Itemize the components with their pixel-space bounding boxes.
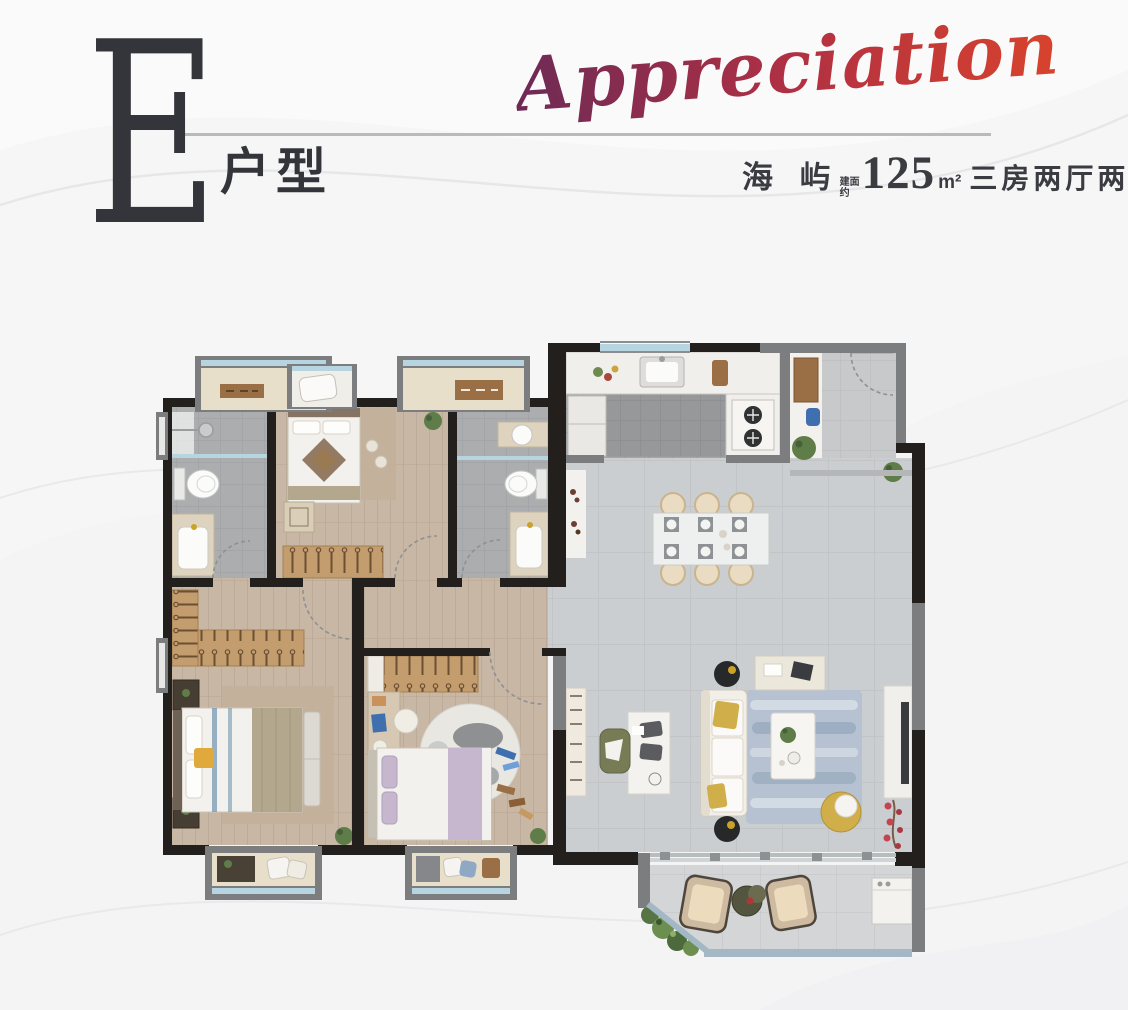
- desk: [628, 712, 670, 794]
- armchair: [600, 729, 630, 773]
- sofa: [701, 690, 747, 816]
- sliding-door: [650, 852, 896, 862]
- bay-window: [205, 846, 322, 900]
- tv-console: [884, 686, 912, 798]
- plant-icon: [335, 827, 353, 845]
- console-table: [755, 656, 825, 690]
- floor-plan-page: E 户型 Appreciation 海 屿 建面 约 125 m² 三房两厅两卫: [0, 0, 1128, 1010]
- lounge-chair: [765, 875, 817, 932]
- lounge-chair: [679, 874, 733, 933]
- balcony-railing: [704, 949, 912, 957]
- basin-icon: [512, 425, 532, 445]
- entry-mat: [566, 470, 586, 558]
- kitchen-sink-icon: [640, 356, 684, 387]
- washing-area: [872, 878, 912, 924]
- fridge-icon: [568, 396, 606, 456]
- vanity-sink: [510, 512, 548, 576]
- plant-icon: [424, 412, 442, 430]
- toilet-icon: [505, 469, 547, 499]
- plant-icon: [530, 828, 546, 844]
- coffee-table: [771, 713, 815, 779]
- desk-chair: [394, 709, 418, 733]
- plant-icon: [792, 436, 816, 460]
- tv-icon: [901, 702, 909, 784]
- lounge-chair: [821, 792, 861, 832]
- console-table: [794, 358, 818, 402]
- stove-icon: [726, 394, 780, 456]
- bed: [368, 748, 491, 840]
- dining-area: [653, 493, 769, 585]
- nightstand: [284, 502, 314, 532]
- floor-plan-image: [0, 0, 1128, 1010]
- toilet-icon: [174, 468, 219, 500]
- bed: [288, 408, 360, 503]
- wardrobe: [368, 656, 478, 692]
- side-table: [714, 661, 740, 687]
- side-table: [714, 816, 740, 842]
- window: [287, 364, 357, 409]
- bay-window: [405, 846, 517, 900]
- wardrobe: [283, 546, 383, 578]
- vanity-sink: [172, 514, 214, 576]
- bay-window: [397, 356, 530, 412]
- shower-head-icon: [199, 423, 213, 437]
- bed: [173, 708, 302, 812]
